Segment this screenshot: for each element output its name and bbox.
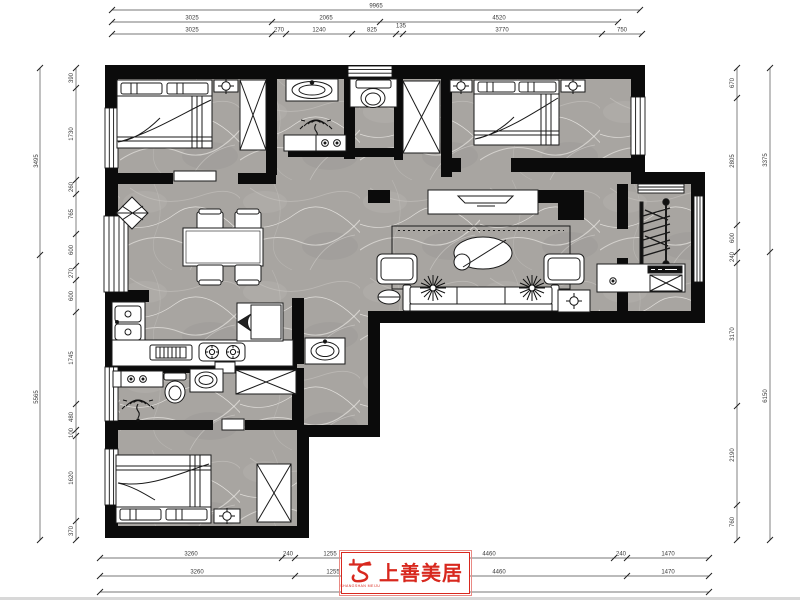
bed-2 (474, 80, 559, 145)
door-leaf-bath2 (222, 419, 244, 430)
dining-table (183, 228, 263, 266)
nightstand-3 (214, 508, 240, 524)
nightstand-1 (214, 78, 238, 94)
dish-rack (150, 345, 192, 360)
window-bedroom2-east-icon (631, 97, 645, 155)
dim-label: 600 (69, 244, 75, 255)
window-bedroom1-west-icon (105, 108, 118, 168)
dim-label: 1470 (661, 552, 675, 558)
window-balcony-north-icon (638, 184, 684, 193)
washer-cabinet (113, 371, 163, 387)
wardrobe-1 (240, 80, 266, 150)
side-table-right (558, 290, 590, 312)
dim-label: 3495 (34, 154, 40, 168)
bed-3 (116, 455, 211, 523)
dim-label: 390 (69, 72, 75, 83)
window-balcony-east-icon (694, 196, 703, 282)
nightstand-2b (561, 78, 585, 94)
floor-plan-page: 9965 3025 2065 4520 3025 270 1240 825 13… (0, 0, 800, 600)
window-dining-west-icon (104, 216, 128, 292)
sofa (403, 285, 559, 311)
dim-label: 3375 (763, 153, 769, 167)
washbasin-corridor (305, 338, 345, 364)
dim-label: 760 (730, 516, 736, 527)
dim-label: 1255 (323, 552, 337, 558)
closet-1 (403, 81, 440, 153)
stove (199, 343, 245, 361)
floor-plan-svg: 9965 3025 2065 4520 3025 270 1240 825 13… (0, 0, 800, 600)
brand-mark: SHANGSHAN MEIJU (345, 558, 376, 588)
dim-label: 1240 (312, 28, 326, 34)
armchair-left (377, 254, 417, 284)
window-top-wall-icon (348, 66, 392, 77)
dim-label: 480 (69, 411, 75, 422)
dim-label: 270 (274, 28, 285, 34)
dim-label: 3770 (495, 28, 509, 34)
dim-label: 765 (69, 208, 75, 219)
dim-label: 3170 (730, 327, 736, 341)
dim-label: 1255 (326, 570, 340, 576)
bed-1 (117, 80, 212, 148)
dim-label: 3260 (190, 570, 204, 576)
dim-label: 3025 (185, 16, 199, 22)
dim-label: 3260 (184, 552, 198, 558)
washbasin-2 (190, 369, 223, 392)
dim-label: 5565 (34, 390, 40, 404)
nightstand-2a (450, 78, 472, 94)
dim-label: 6150 (763, 389, 769, 403)
balcony-cabinet (597, 264, 685, 292)
dim-label: 2805 (730, 154, 736, 168)
dim-label: 9965 (369, 4, 383, 10)
dim-label: 1470 (661, 570, 675, 576)
bath1-vanity (284, 135, 346, 151)
dim-label: 600 (69, 290, 75, 301)
brand-subtitle: SHANGSHAN MEIJU (341, 584, 381, 588)
dim-label: 3025 (185, 28, 199, 34)
brand-title: 上善美居 (379, 563, 463, 583)
dim-label: 1620 (69, 471, 75, 485)
dim-label: 670 (730, 77, 736, 88)
dim-label: 2190 (730, 448, 736, 462)
dim-label: 825 (367, 28, 378, 34)
dim-label: 260 (69, 181, 75, 192)
brand-logo: SHANGSHAN MEIJU 上善美居 (341, 552, 470, 594)
toilet-2 (164, 373, 186, 403)
side-oval (378, 290, 400, 304)
dim-label: 4460 (482, 552, 496, 558)
dim-label: 370 (69, 525, 75, 536)
desk (237, 303, 283, 341)
toilet-1 (350, 79, 397, 108)
dim-label: 240 (283, 552, 294, 558)
dim-label: 240 (616, 552, 627, 558)
door-leaf-bedroom1 (174, 171, 216, 181)
dim-label: 750 (617, 28, 628, 34)
armchair-right (544, 254, 584, 284)
wardrobe-2 (236, 370, 296, 394)
wardrobe-3 (257, 464, 291, 522)
tv-cabinet (428, 190, 538, 214)
dim-label: 4520 (492, 16, 506, 22)
dim-label: 600 (730, 232, 736, 243)
dim-label: 4460 (492, 570, 506, 576)
washbasin-1 (286, 79, 338, 101)
brand-mark-icon (347, 558, 375, 584)
dim-label: 100 (69, 427, 75, 438)
dim-label: 1730 (69, 127, 75, 141)
dim-label: 270 (69, 267, 75, 278)
dim-label: 1745 (69, 351, 75, 365)
dim-label: 135 (396, 24, 407, 30)
dim-label: 2065 (319, 16, 333, 22)
dim-label: 240 (730, 251, 736, 262)
